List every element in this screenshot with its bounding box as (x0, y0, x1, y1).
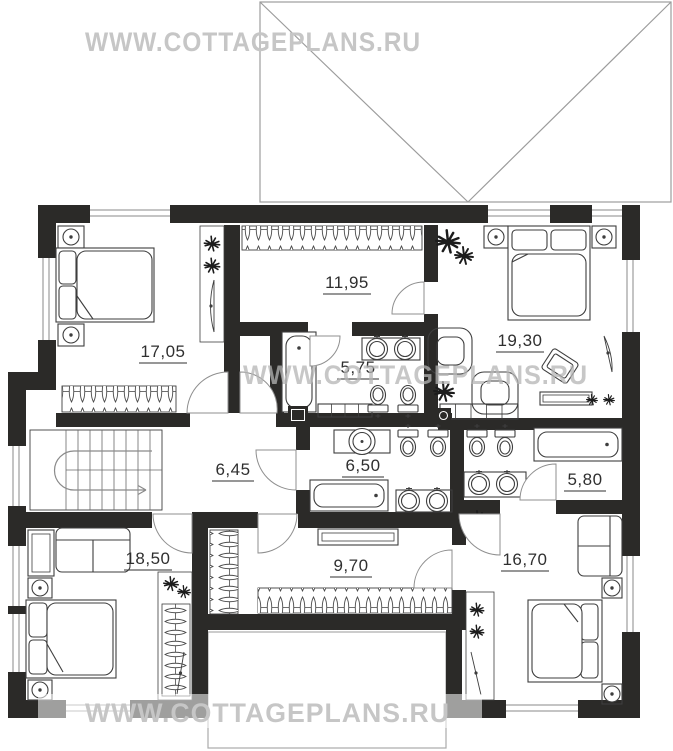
bathtub-symbol (310, 480, 388, 511)
window-opening (488, 205, 550, 223)
vent-shaft (288, 406, 308, 424)
plant-symbol (604, 395, 615, 405)
nightstand-symbol (602, 578, 622, 598)
floor-plan-image: WWW.COTTAGEPLANS.RU (0, 0, 673, 751)
washbasin-counter (362, 335, 420, 360)
washbasin-counter (464, 470, 526, 497)
svg-text:19,30: 19,30 (497, 331, 542, 350)
room-area-label: 11,95 (323, 273, 371, 294)
nightstand-symbol (484, 226, 508, 248)
svg-text:18,50: 18,50 (125, 549, 170, 568)
floor-plan-canvas: WWW.COTTAGEPLANS.RU (0, 0, 673, 751)
watermark-bottom: WWW.COTTAGEPLANS.RU (85, 698, 450, 728)
console-table (318, 529, 398, 545)
room-corridor (210, 529, 452, 614)
wardrobe-hanger-rail (62, 386, 176, 412)
nightstand-symbol (592, 226, 616, 248)
plant-symbol (470, 625, 484, 638)
plant-symbol (178, 586, 191, 598)
washbasin-counter (396, 487, 452, 512)
room-area-label: 6,45 (212, 460, 254, 481)
lower-roof-outline (208, 632, 446, 748)
wardrobe-hanger-rail (210, 530, 238, 614)
room-dressing (242, 226, 422, 250)
door-arc (414, 550, 452, 588)
door-arc (392, 282, 424, 314)
plant-symbol (204, 236, 219, 250)
double-bed-symbol (528, 600, 602, 682)
closet-nook (158, 572, 192, 700)
wardrobe-hanger-rail (258, 588, 452, 613)
svg-text:11,95: 11,95 (325, 273, 369, 292)
mirror-symbol (604, 336, 612, 372)
window-opening (8, 614, 26, 672)
plant-symbol (164, 577, 178, 591)
door-arc (258, 514, 297, 553)
nightstand-symbol (58, 324, 84, 346)
sink-symbol (427, 487, 448, 512)
dresser-symbol (28, 530, 54, 576)
svg-text:9,70: 9,70 (333, 556, 368, 575)
wardrobe-hanger-rail (242, 226, 422, 250)
svg-text:5,80: 5,80 (567, 470, 602, 489)
plant-symbol (204, 258, 219, 272)
sink-symbol (497, 470, 518, 495)
svg-text:16,70: 16,70 (502, 550, 547, 569)
window-opening (506, 700, 578, 718)
room-area-label: 9,70 (330, 556, 372, 577)
door-arc (256, 450, 296, 490)
door-arc (187, 372, 228, 413)
sofa-symbol (578, 516, 622, 576)
dresser-symbol (540, 392, 592, 405)
window-opening (622, 556, 640, 632)
room-bedroom-top-right (428, 226, 616, 419)
plant-symbol (470, 603, 484, 616)
svg-text:17,05: 17,05 (140, 342, 185, 361)
room-area-label: 18,50 (124, 549, 172, 570)
window-opening (38, 258, 56, 340)
closet-nook (466, 592, 494, 700)
room-area-label: 19,30 (496, 331, 544, 352)
sink-symbol (367, 335, 388, 360)
room-area-label: 17,05 (139, 342, 187, 363)
svg-text:6,50: 6,50 (345, 456, 380, 475)
watermark-middle: WWW.COTTAGEPLANS.RU (243, 360, 588, 390)
room-area-label: 16,70 (501, 550, 549, 571)
room-bathroom-middle (310, 424, 452, 512)
door-arc (459, 514, 500, 555)
door-arc (153, 514, 192, 553)
sofa-symbol (56, 528, 130, 572)
door-arc (520, 464, 556, 500)
bathtub-symbol (534, 428, 622, 461)
window-opening (8, 546, 26, 606)
window-opening (592, 205, 622, 223)
double-bed-symbol (56, 248, 154, 322)
room-area-label: 5,80 (564, 470, 606, 491)
watermark-top: WWW.COTTAGEPLANS.RU (85, 27, 421, 57)
closet-column (200, 226, 224, 342)
room-area-label: 6,50 (342, 456, 384, 477)
sink-symbol (395, 335, 416, 360)
vent-shaft (436, 408, 451, 423)
double-bed-symbol (26, 600, 116, 678)
plant-symbol (436, 230, 459, 252)
svg-text:6,45: 6,45 (215, 460, 250, 479)
nightstand-symbol (28, 578, 52, 598)
plant-symbol (455, 247, 473, 264)
nightstand-symbol (58, 226, 84, 248)
window-opening (90, 205, 170, 223)
washbasin-counter (334, 429, 390, 455)
toilet-symbol (398, 424, 418, 457)
sink-symbol (469, 470, 490, 495)
stairs-direction-arrow (55, 451, 153, 495)
staircase (30, 430, 162, 510)
wardrobe-hanger-rail (162, 604, 190, 696)
sink-symbol (399, 487, 420, 512)
window-opening (8, 446, 26, 506)
window-opening (622, 260, 640, 332)
double-bed-symbol (508, 226, 590, 320)
